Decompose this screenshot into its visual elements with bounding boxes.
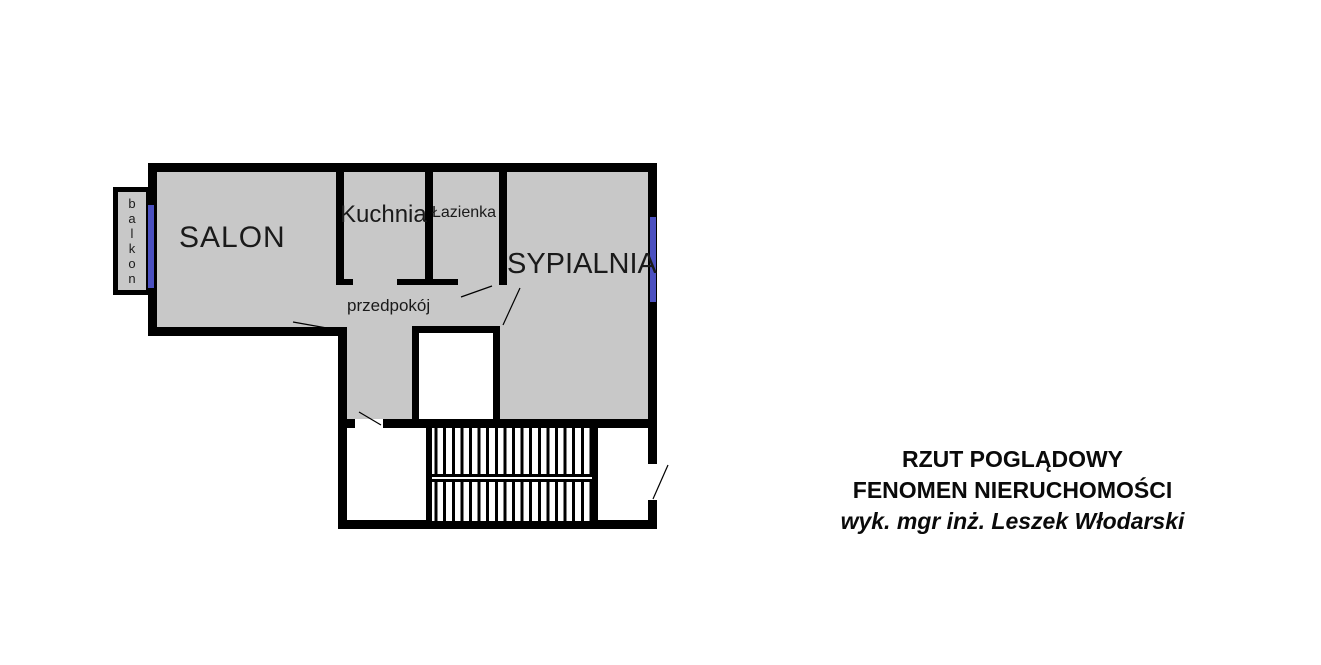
wall-kuchnia-lazienka [425, 172, 433, 285]
stairwell-opening [419, 333, 493, 419]
staircase [426, 428, 598, 521]
stair-flight-upper [426, 428, 598, 474]
room-label-przedpokoj: przedpokój [347, 297, 430, 316]
wall-hall-left [338, 327, 347, 529]
wall-stairwell-box-left [412, 326, 419, 428]
wall-lazienka-right [499, 172, 507, 285]
room-label-lazienka: Łazienka [432, 204, 496, 222]
wall-stairwell-box-top [412, 326, 500, 333]
door-swing-entrance [653, 465, 668, 499]
room-label-balkon: balkon [128, 196, 137, 286]
room-label-sypialnia: SYPIALNIA [507, 249, 657, 281]
window-balcony-door [148, 205, 154, 288]
wall-stairhall-right-upper [648, 428, 657, 464]
wall-salon-kuchnia [336, 172, 344, 285]
room-label-kuchnia: Kuchnia [340, 202, 427, 228]
floor-plan-canvas: balkon SALON Kuchnia Łazie [0, 0, 1321, 665]
title-block: RZUT POGLĄDOWY FENOMEN NIERUCHOMOŚCI wyk… [810, 444, 1215, 537]
stair-landing-rail-top [426, 474, 598, 477]
stair-flight-lower [426, 482, 598, 521]
room-label-salon: SALON [179, 221, 286, 254]
wall-top [148, 163, 657, 172]
wall-stairwell-box-right [493, 326, 500, 428]
wall-stairhall-bottom [338, 520, 657, 529]
balcony: balkon [113, 187, 151, 295]
wall-salon-bottom [148, 327, 347, 336]
stair-landing-rail-bottom [426, 479, 598, 482]
author-credit: wyk. mgr inż. Leszek Włodarski [810, 506, 1215, 537]
door-gap-hall-stairs [355, 419, 383, 428]
plan-title: RZUT POGLĄDOWY [810, 444, 1215, 475]
company-name: FENOMEN NIERUCHOMOŚCI [810, 475, 1215, 506]
wall-lazienka-bottom [433, 279, 458, 285]
wall-kuchnia-bottom-stub [336, 279, 353, 285]
